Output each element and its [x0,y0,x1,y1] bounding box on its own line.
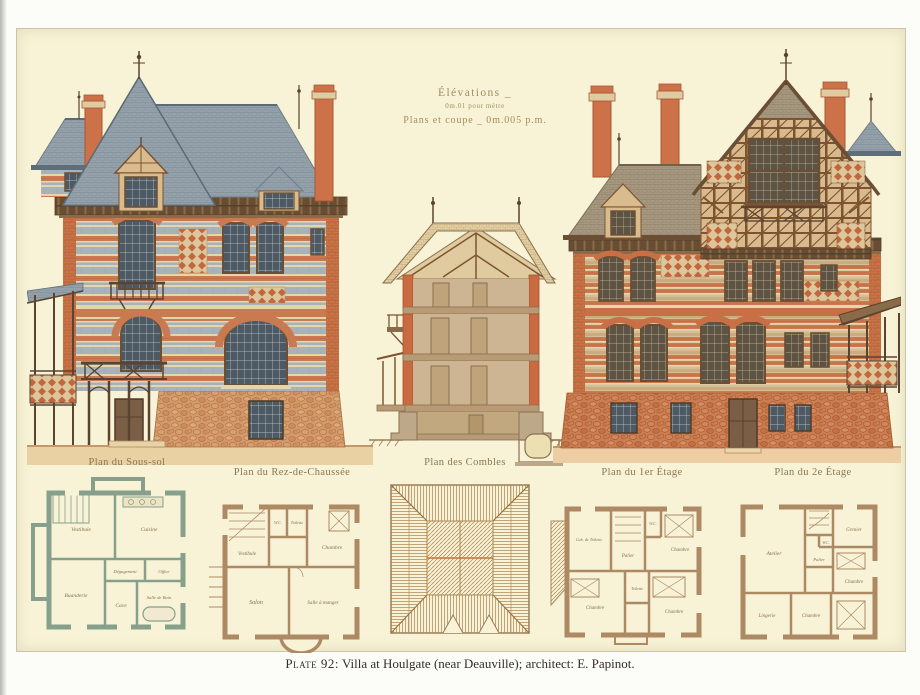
side-elevation-drawing [553,37,901,467]
plan-label-combles: Plan des Combles [385,457,545,468]
plate: Élévations _ 0m.01 pour mètre Plans et c… [16,28,906,652]
room-label-palier-2e: Palier [812,557,825,562]
front-elevation-drawing [27,45,373,465]
scale-annotation: Élévations _ 0m.01 pour mètre Plans et c… [369,87,581,126]
room-label-atelier: Atelier [766,551,783,557]
room-label-chambre-rdc: Chambre [322,545,343,551]
room-label-salon: Salon [249,600,263,606]
room-label-palier-1er: Palier [621,554,635,559]
room-label-office: Office [158,569,169,574]
room-label-wc-1er: W.C. [649,521,657,526]
scanned-plate-page: Élévations _ 0m.01 pour mètre Plans et c… [0,0,920,695]
room-label-lingerie: Lingerie [758,614,777,619]
plan-premier-etage-drawing: Cab. de Toilette Palier W.C. Chambre Cha… [549,491,717,651]
room-label-chambre3-1er: Chambre [665,610,684,615]
room-label-toilette-1er: Toilette [631,586,643,591]
plate-caption-text: Villa at Houlgate (near Deauville); arch… [342,656,635,671]
annotation-elevation-scale: 0m.01 pour mètre [369,102,581,110]
section-drawing [369,187,569,467]
room-label-chambre2-1er: Chambre [586,606,605,611]
scan-edge-shadow [0,0,7,695]
room-label-salle-de-bain: Salle de Bain [147,595,172,600]
plan-rez-de-chaussee-drawing: Vestibule W.C. Toilette Chambre Salon Sa… [209,489,373,653]
plan-label-rez-de-chaussee: Plan du Rez-de-Chaussée [207,467,377,478]
plan-label-sous-sol: Plan du Sous-sol [47,457,207,468]
room-label-degagement: Dégagement [112,569,137,574]
room-label-chambre1-1er: Chambre [671,548,690,553]
plan-sous-sol-drawing: Vestibule Cuisine Buanderie Dégagement O… [31,477,199,641]
plan-label-deuxieme-etage: Plan du 2e Étage [723,467,903,478]
room-label-salle-a-manger: Salle à manger [307,600,339,606]
room-label-wc-2e: W.C. [822,541,829,545]
plan-combles-drawing [383,477,537,641]
plate-caption-number: Plate 92: [285,656,339,671]
room-label-buanderie: Buanderie [65,593,88,599]
room-label-wc-rdc: W.C. [274,520,282,525]
plan-label-premier-etage: Plan du 1er Étage [557,467,727,478]
room-label-cuisine: Cuisine [141,527,158,533]
room-label-vestibule: Vestibule [71,527,91,533]
room-label-chambre1-2e: Chambre [845,580,864,585]
plate-caption: Plate 92: Villa at Houlgate (near Deauvi… [0,656,920,672]
plan-deuxieme-etage-drawing: Atelier Grenier W.C. Palier Chambre Ling… [727,491,895,651]
room-label-cave: Cave [115,603,127,609]
room-label-toilette-rdc: Toilette [291,520,304,525]
room-label-grenier: Grenier [846,528,862,533]
annotation-plans-scale: Plans et coupe _ 0m.005 p.m. [369,115,581,126]
annotation-elevations: Élévations _ [369,87,581,99]
room-label-vestibule-rdc: Vestibule [238,552,257,557]
room-label-chambre2-2e: Chambre [802,614,821,619]
room-label-cab-toilette: Cab. de Toilette [576,537,603,542]
